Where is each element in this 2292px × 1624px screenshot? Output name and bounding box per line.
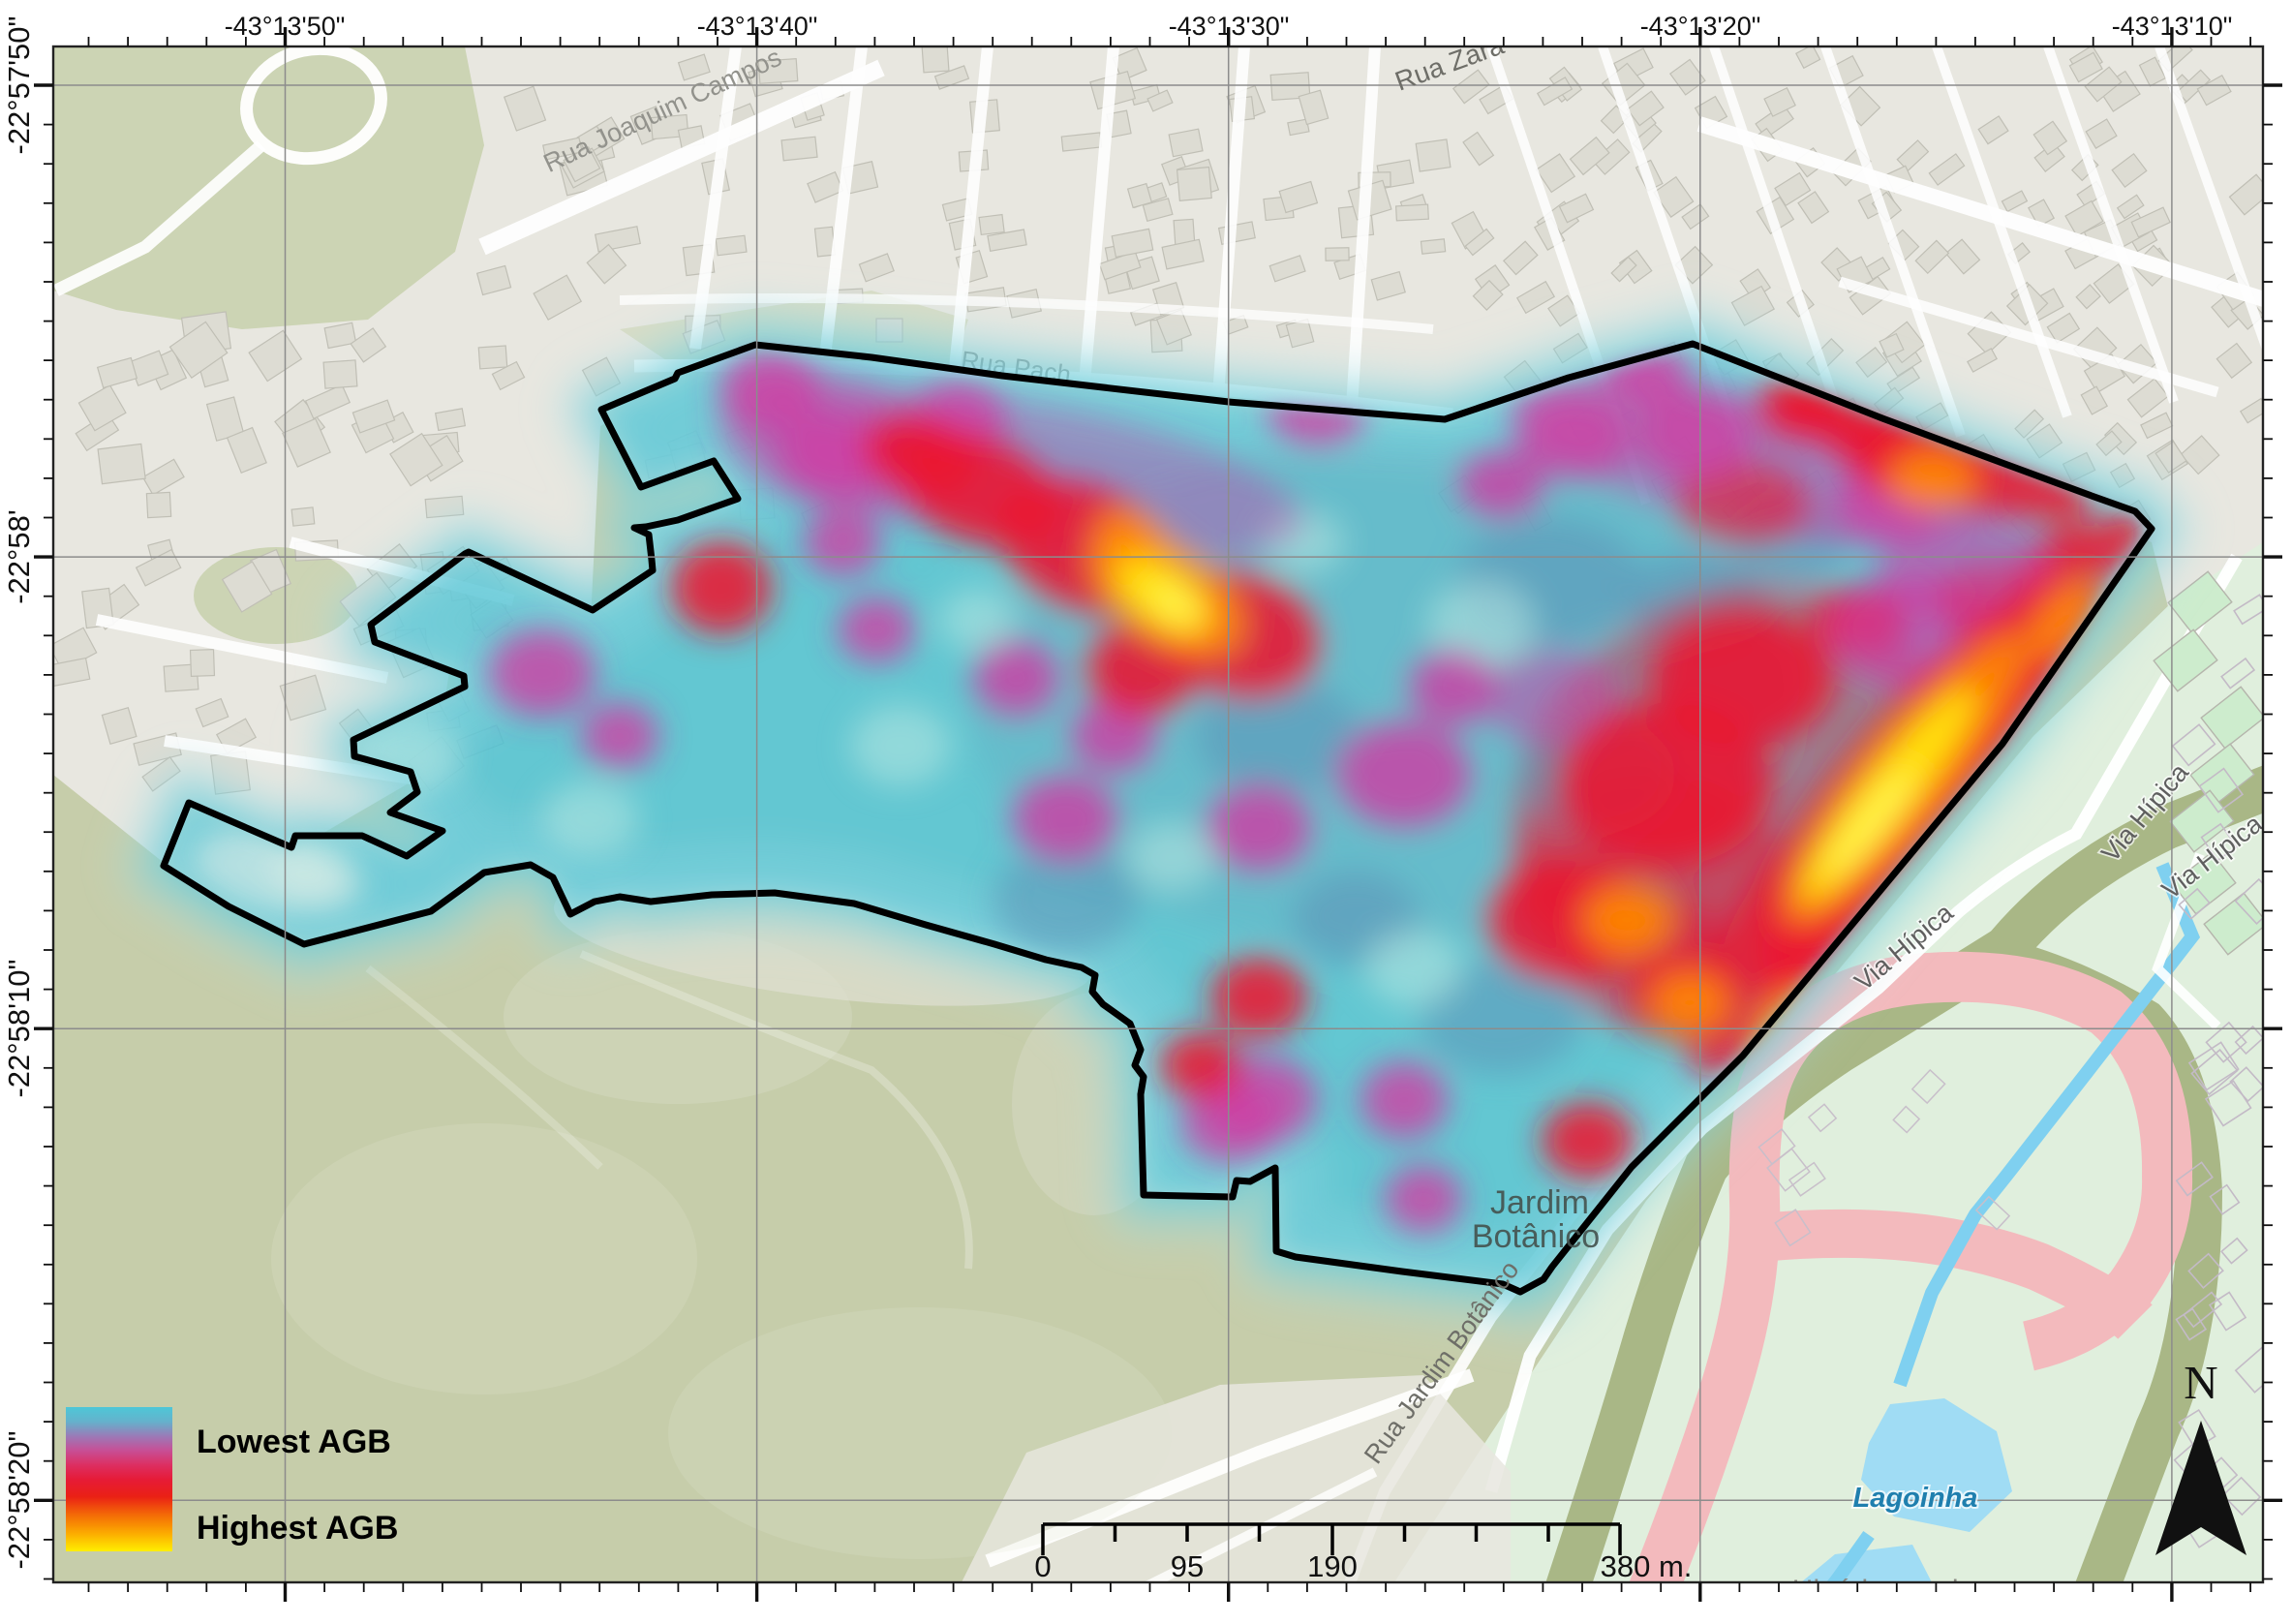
svg-text:Botânico: Botânico	[1472, 1218, 1600, 1255]
svg-text:-43°13'30": -43°13'30"	[1169, 12, 1290, 41]
svg-text:-43°13'40": -43°13'40"	[697, 12, 818, 41]
svg-text:0: 0	[1034, 1549, 1051, 1583]
svg-text:-22°58': -22°58'	[2, 509, 36, 604]
svg-text:-43°13'20": -43°13'20"	[1640, 12, 1761, 41]
svg-text:N: N	[2184, 1356, 2217, 1409]
svg-text:-22°58'10": -22°58'10"	[2, 959, 36, 1097]
svg-text:Lowest AGB: Lowest AGB	[197, 1424, 391, 1460]
svg-text:-43°13'10": -43°13'10"	[2112, 12, 2233, 41]
svg-text:95: 95	[1171, 1549, 1204, 1583]
svg-text:Lagoinha: Lagoinha	[1853, 1483, 1978, 1514]
svg-text:Highest AGB: Highest AGB	[197, 1510, 398, 1547]
svg-text:-22°57'50": -22°57'50"	[2, 15, 36, 154]
svg-text:190: 190	[1307, 1549, 1358, 1583]
svg-text:Jardim: Jardim	[1490, 1184, 1589, 1221]
svg-text:-43°13'50": -43°13'50"	[225, 12, 346, 41]
svg-text:380 m.: 380 m.	[1601, 1549, 1693, 1583]
svg-text:-22°58'20": -22°58'20"	[2, 1430, 36, 1569]
